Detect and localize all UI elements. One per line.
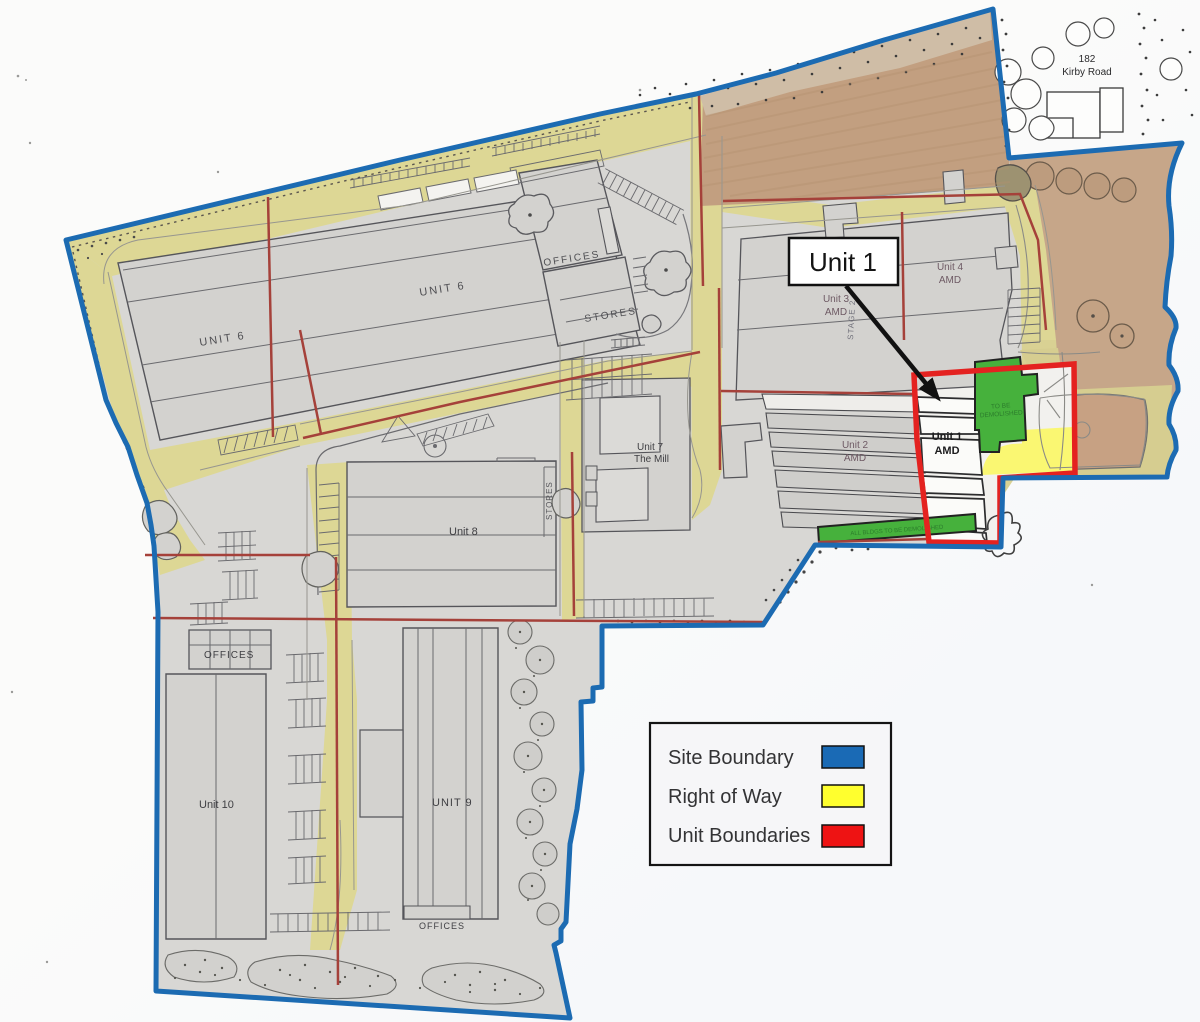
svg-text:182: 182 [1079, 54, 1096, 65]
svg-text:The Mill: The Mill [634, 454, 669, 465]
svg-text:Unit 1: Unit 1 [932, 431, 963, 443]
svg-text:Unit 2: Unit 2 [842, 440, 869, 451]
svg-text:TO BE: TO BE [991, 402, 1011, 410]
svg-text:Right of Way: Right of Way [668, 786, 782, 808]
svg-text:AMD: AMD [844, 453, 866, 464]
svg-text:Unit 10: Unit 10 [199, 799, 234, 811]
svg-text:Unit 1: Unit 1 [809, 247, 877, 277]
svg-text:UNIT 9: UNIT 9 [432, 797, 473, 809]
svg-text:AMD: AMD [934, 445, 959, 457]
svg-text:OFFICES: OFFICES [204, 650, 254, 661]
svg-text:Unit 7: Unit 7 [637, 442, 664, 453]
svg-text:AMD: AMD [825, 307, 847, 318]
svg-text:Unit 3: Unit 3 [823, 294, 850, 305]
svg-text:Unit 4: Unit 4 [937, 262, 964, 273]
svg-text:Kirby Road: Kirby Road [1062, 67, 1111, 78]
svg-text:Unit Boundaries: Unit Boundaries [668, 825, 810, 847]
svg-text:Unit 8: Unit 8 [449, 526, 478, 538]
svg-text:STORES: STORES [545, 481, 554, 520]
svg-text:AMD: AMD [939, 275, 961, 286]
svg-text:OFFICES: OFFICES [419, 921, 465, 931]
svg-text:Site Boundary: Site Boundary [668, 747, 794, 769]
